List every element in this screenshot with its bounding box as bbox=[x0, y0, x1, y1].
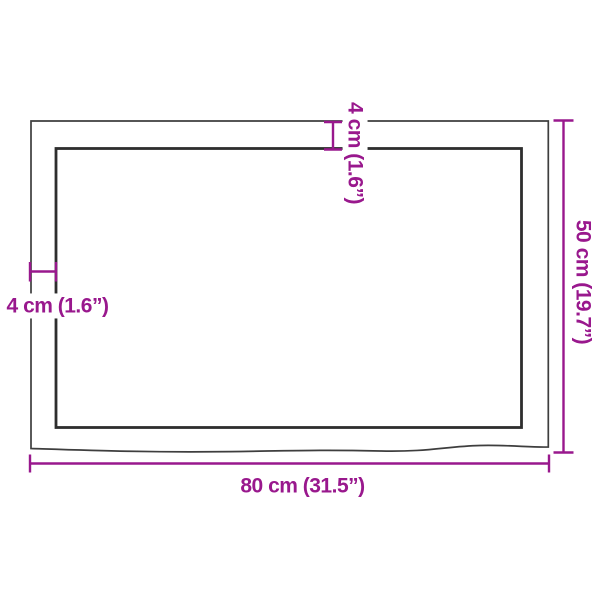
width-label: 80 cm (31.5”) bbox=[237, 473, 367, 498]
thickness-tick-top bbox=[324, 122, 342, 150]
thickness-label-left: 4 cm (1.6”) bbox=[4, 293, 112, 318]
height-label: 50 cm (19.7”) bbox=[570, 217, 595, 347]
thickness-tick-left bbox=[30, 262, 56, 282]
thickness-label-top: 4 cm (1.6”) bbox=[342, 99, 367, 207]
panel-inner-outline bbox=[56, 149, 522, 428]
dimension-diagram: 4 cm (1.6”) 4 cm (1.6”) 50 cm (19.7”) 80… bbox=[0, 0, 600, 600]
panel-outer-outline bbox=[31, 121, 548, 452]
dimension-line-width bbox=[30, 455, 549, 473]
